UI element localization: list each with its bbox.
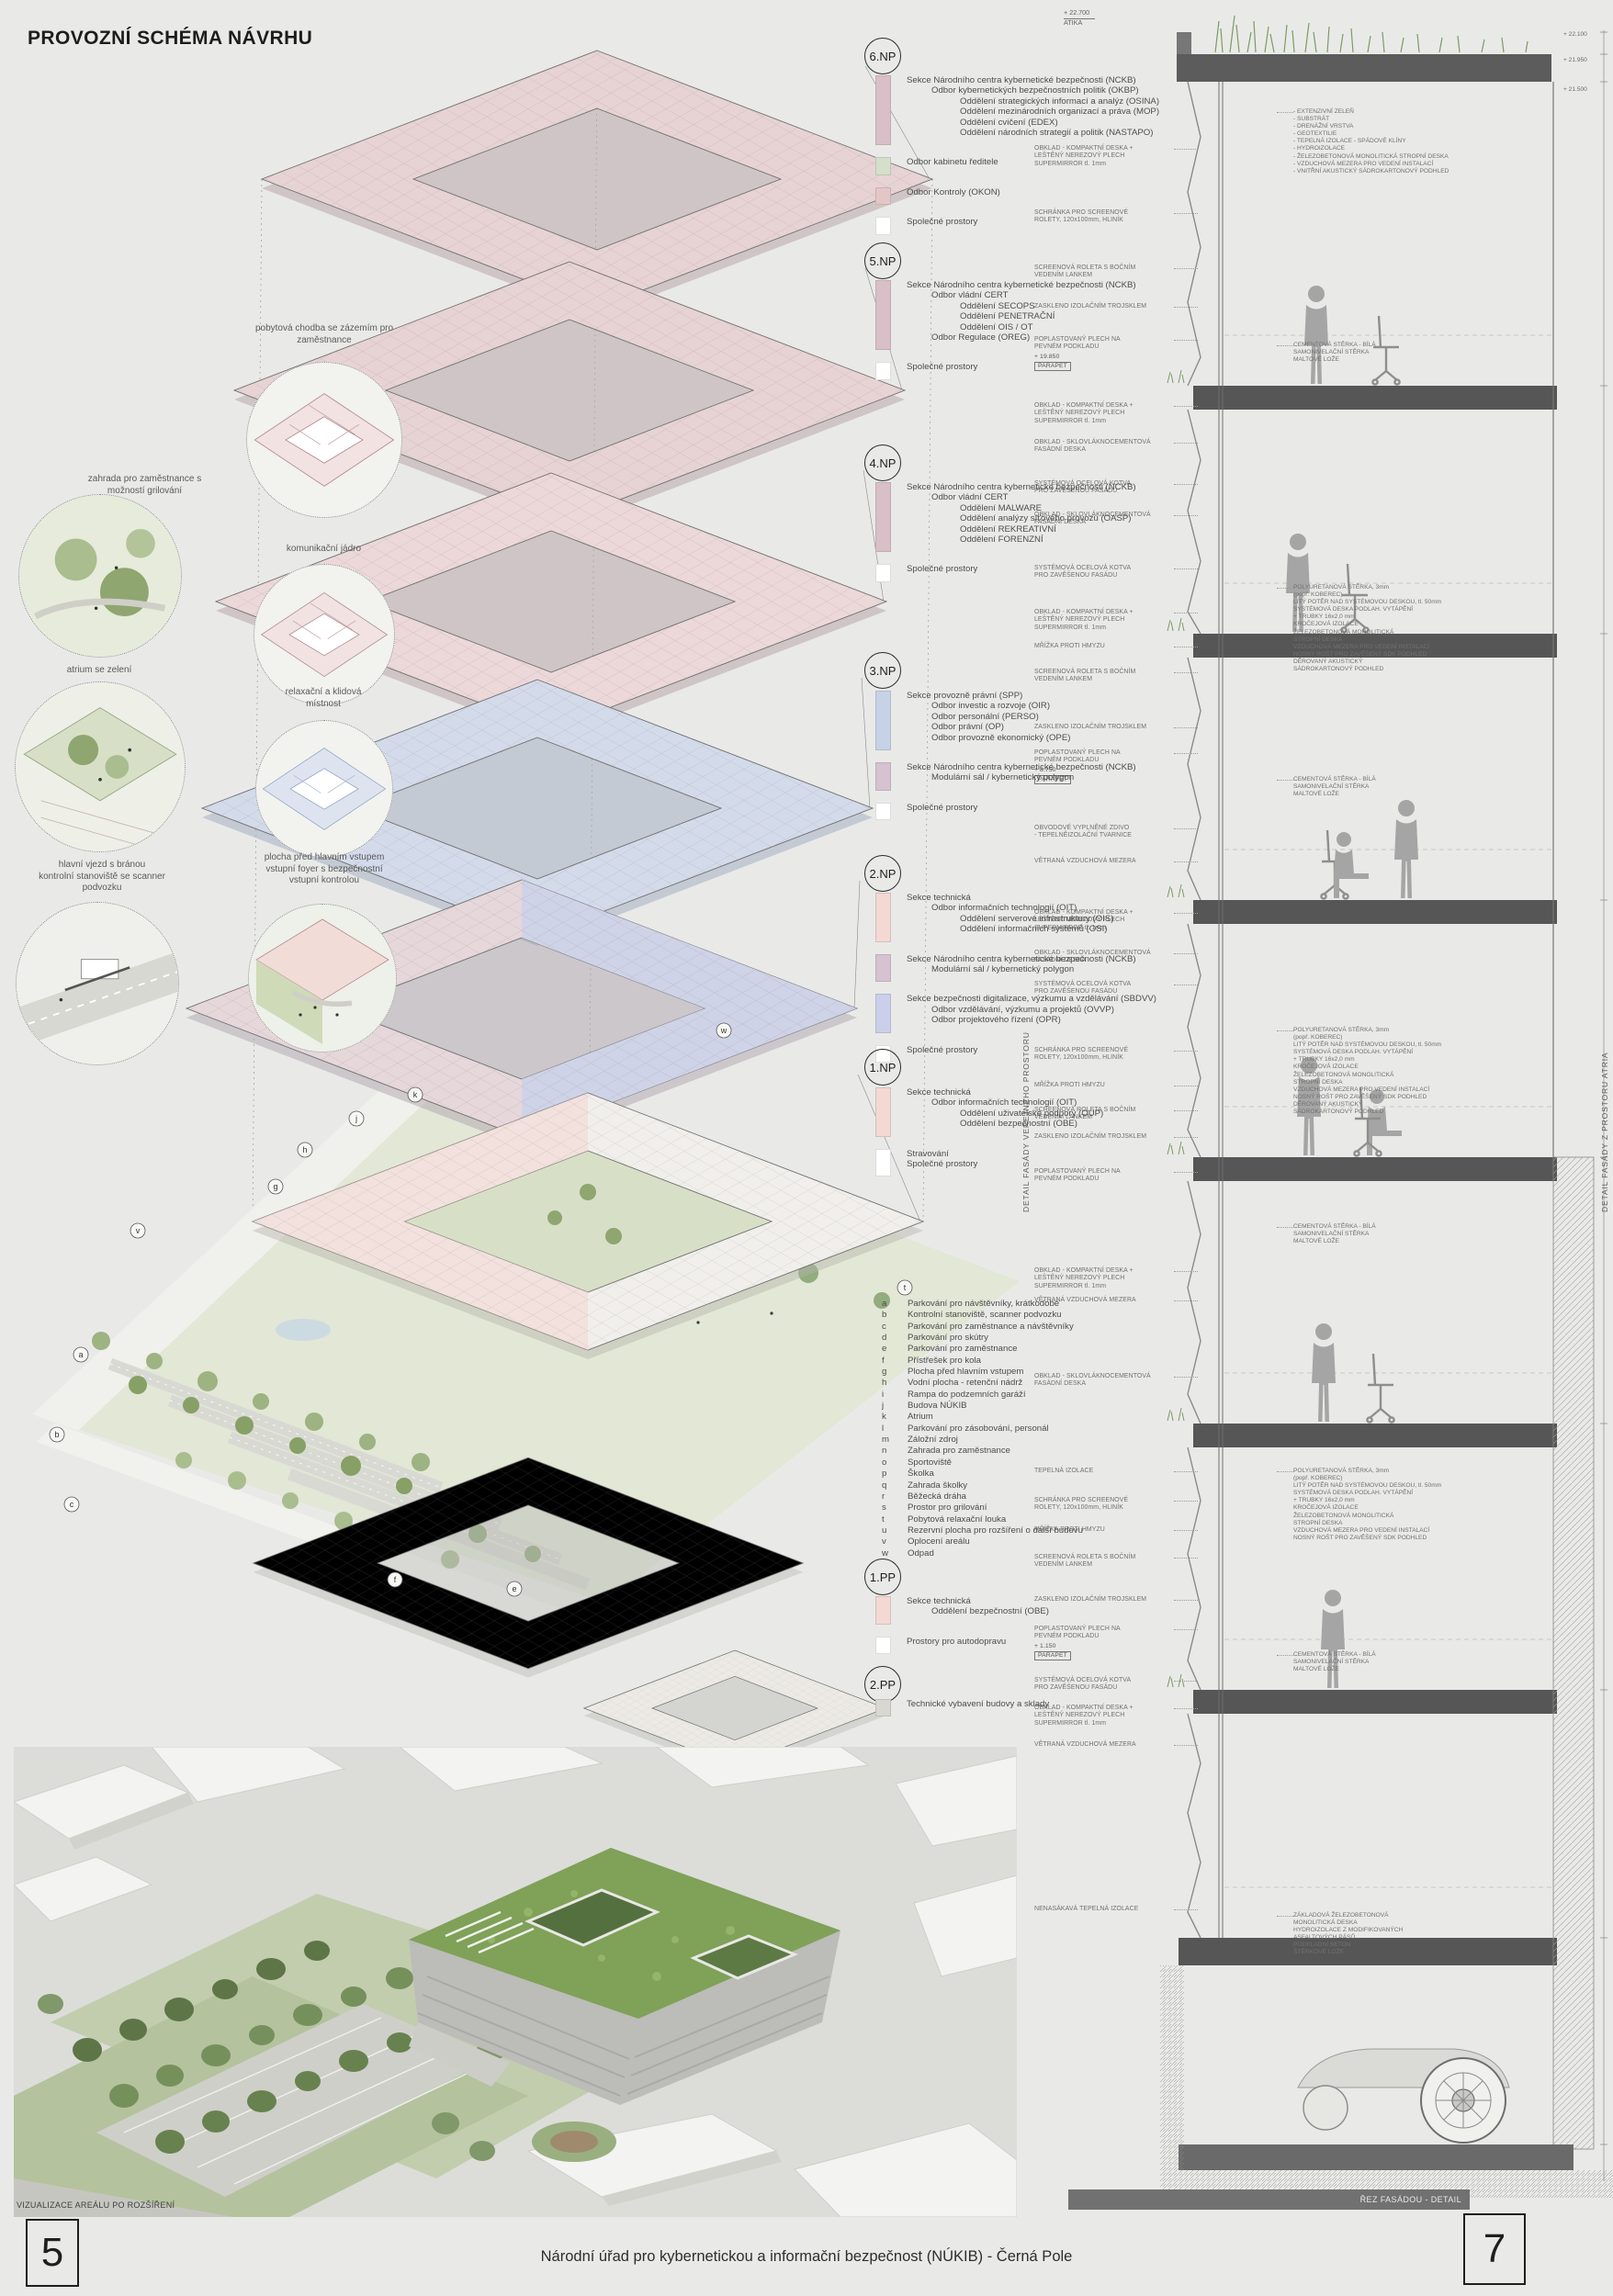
- facade-annotation: SCREENOVÁ ROLETA S BOČNÍMVEDENÍM LANKEM: [1034, 264, 1174, 280]
- floor-legend-5.NP: Sekce Národního centra kybernetické bezp…: [875, 280, 1188, 392]
- facade-annotation: OBKLAD - KOMPAKTNÍ DESKA +LEŠTĚNÝ NEREZO…: [1034, 402, 1174, 425]
- section-bar: ŘEZ FASÁDOU - DETAIL: [1068, 2189, 1470, 2210]
- floor-circle-3.NP: 3.NP: [864, 652, 901, 689]
- legend-color-chip: [875, 362, 891, 379]
- facade-annotation: SCREENOVÁ ROLETA S BOČNÍMVEDENÍM LANKEM: [1034, 669, 1174, 684]
- legend-text: Společné prostory: [907, 564, 977, 581]
- svg-text:k: k: [413, 1090, 418, 1099]
- roof-grass: [1215, 16, 1528, 52]
- car-drawing: [1298, 2049, 1509, 2143]
- site-list-item: tPobytová relaxační louka: [882, 1514, 1185, 1525]
- floor-legend-1.PP: Sekce technickáOddělení bezpečnostní (OB…: [875, 1596, 1188, 1666]
- facade-annotation: VĚTRANÁ VZDUCHOVÁ MEZERA: [1034, 1741, 1174, 1749]
- legend-text: Odbor kabinetu ředitele: [907, 157, 998, 174]
- svg-text:b: b: [54, 1430, 59, 1439]
- legend-text: Sekce provozně právní (SPP)Odbor investi…: [907, 691, 1070, 750]
- floor-circle-2.PP: 2.PP: [864, 1666, 901, 1703]
- legend-text: Sekce technickáOddělení bezpečnostní (OB…: [907, 1596, 1049, 1625]
- site-list-item: fPřístřešek pro kola: [882, 1356, 1185, 1367]
- floor-legend-3.NP: Sekce provozně právní (SPP)Odbor investi…: [875, 691, 1188, 832]
- legend-color-chip: [875, 75, 891, 145]
- legend-text: Společné prostory: [907, 803, 977, 820]
- visualization-label: VIZUALIZACE AREÁLU PO ROZŠÍŘENÍ: [17, 2200, 175, 2210]
- callout-circle: [248, 904, 397, 1052]
- legend-color-chip: [875, 1699, 891, 1716]
- legend-text: Společné prostory: [907, 217, 977, 234]
- floor-plate-2pp: [584, 1650, 886, 1754]
- legend-color-chip: [875, 564, 891, 581]
- facade-annotation-right: POLYURETANOVÁ STĚRKA, 3mm(popř. KOBEREC)…: [1293, 1468, 1454, 1542]
- margin-elevation: + 21.500: [1563, 86, 1587, 93]
- callout-label: zahrada pro zaměstnance smožností grilov…: [46, 474, 243, 497]
- site-list-item: lParkování pro zásobování, personál: [882, 1424, 1185, 1435]
- legend-color-chip: [875, 187, 891, 205]
- svg-text:w: w: [720, 1026, 728, 1035]
- site-list-item: jBudova NÚKIB: [882, 1401, 1185, 1412]
- facade-annotation-right: - EXTENZIVNÍ ZELEŇ- SUBSTRÁT- DRENÁŽNÍ V…: [1293, 108, 1454, 175]
- floor-circle-4.NP: 4.NP: [864, 445, 901, 481]
- site-key-list: aParkování pro návštěvníky, krátkodobébK…: [882, 1299, 1185, 1559]
- legend-color-chip: [875, 893, 891, 942]
- legend-text: Sekce bezpečnosti digitalizace, výzkumu …: [907, 994, 1156, 1032]
- site-list-item: mZáložní zdroj: [882, 1435, 1185, 1446]
- legend-color-chip: [875, 954, 891, 983]
- callout-label: plocha před hlavním vstupemvstupní foyer…: [234, 852, 414, 887]
- legend-text: Společné prostory: [907, 1045, 977, 1063]
- legend-color-chip: [875, 994, 891, 1032]
- site-list-item: qZahrada školky: [882, 1480, 1185, 1491]
- callout-circle: [18, 494, 182, 658]
- legend-text: StravováníSpolečné prostory: [907, 1149, 977, 1177]
- legend-color-chip: [875, 1596, 891, 1625]
- svg-text:j: j: [355, 1114, 357, 1123]
- facade-annotation-right: CEMENTOVÁ STĚRKA - BÍLÁSAMONIVELAČNÍ STĚ…: [1293, 1223, 1454, 1245]
- legend-color-chip: [875, 803, 891, 820]
- site-list-item: iRampa do podzemních garáží: [882, 1390, 1185, 1401]
- facade-annotation-right: POLYURETANOVÁ STĚRKA, 3mm(popř. KOBEREC)…: [1293, 584, 1454, 673]
- legend-color-chip: [875, 762, 891, 791]
- callout-label: relaxační a klidovámístnost: [241, 687, 406, 710]
- site-list-item: sProstor pro grilování: [882, 1503, 1185, 1514]
- site-list-item: bKontrolní stanoviště, scanner podvozku: [882, 1310, 1185, 1321]
- facade-annotation-right: ZÁKLADOVÁ ŽELEZOBETONOVÁMONOLITICKÁ DESK…: [1293, 1912, 1454, 1957]
- callout-label: pobytová chodba se zázemím prozaměstnanc…: [242, 323, 407, 346]
- facade-annotation: OBKLAD - SKLOVLÁKNOCEMENTOVÁFASÁDNÍ DESK…: [1034, 439, 1174, 455]
- person-silhouette: [1304, 286, 1328, 384]
- svg-text:a: a: [78, 1350, 83, 1359]
- legend-color-chip: [875, 280, 891, 350]
- callout-label: atrium se zelení: [26, 665, 173, 677]
- callout-circle: [16, 902, 179, 1065]
- legend-text: Technické vybavení budovy a sklady: [907, 1699, 1049, 1716]
- callout-circle: [15, 681, 186, 852]
- legend-text: Společné prostory: [907, 362, 977, 379]
- facade-annotation: MŘÍŽKA PROTI HMYZU: [1034, 643, 1174, 650]
- site-list-item: vOplocení areálu: [882, 1536, 1185, 1548]
- floor-legend-1.NP: Sekce technickáOdbor informačních techno…: [875, 1087, 1188, 1188]
- site-list-item: kAtrium: [882, 1412, 1185, 1423]
- facade-annotation: SYSTÉMOVÁ OCELOVÁ KOTVAPRO ZAVĚŠENOU FAS…: [1034, 1677, 1174, 1693]
- site-list-item: gPlocha před hlavním vstupem: [882, 1367, 1185, 1378]
- site-list-item: rBěžecká dráha: [882, 1491, 1185, 1503]
- svg-text:c: c: [70, 1500, 74, 1509]
- floor-legend-6.NP: Sekce Národního centra kybernetické bezp…: [875, 75, 1188, 247]
- callout-circle: [255, 720, 393, 858]
- margin-elevation: + 21.950: [1563, 57, 1587, 63]
- callout-circle: [246, 362, 402, 518]
- site-list-item: dParkování pro skútry: [882, 1333, 1185, 1344]
- legend-text: Odbor Kontroly (OKON): [907, 187, 1000, 205]
- site-list-item: aParkování pro návštěvníky, krátkodobé: [882, 1299, 1185, 1310]
- floor-legend-4.NP: Sekce Národního centra kybernetické bezp…: [875, 482, 1188, 594]
- callout-circle: [254, 564, 395, 705]
- callout-label: komunikační jádro: [234, 544, 413, 556]
- footer-title: Národní úřad pro kybernetickou a informa…: [0, 2248, 1613, 2266]
- site-list-item: pŠkolka: [882, 1469, 1185, 1480]
- site-list-item: eParkování pro zaměstnance: [882, 1344, 1185, 1355]
- legend-text: Sekce technickáOdbor informačních techno…: [907, 1087, 1103, 1137]
- site-list-item: cParkování pro zaměstnance a návštěvníky: [882, 1322, 1185, 1333]
- svg-text:g: g: [273, 1182, 277, 1191]
- floor-legend-2.PP: Technické vybavení budovy a sklady: [875, 1699, 1188, 1728]
- floor-circle-2.NP: 2.NP: [864, 855, 901, 892]
- facade-annotation-right: CEMENTOVÁ STĚRKA - BÍLÁSAMONIVELAČNÍ STĚ…: [1293, 776, 1454, 798]
- site-list-item: nZahrada pro zaměstnance: [882, 1446, 1185, 1457]
- legend-color-chip: [875, 691, 891, 750]
- floor-circle-1.PP: 1.PP: [864, 1559, 901, 1595]
- facade-cladding-zigzag: [1188, 82, 1201, 1938]
- facade-annotation-right: POLYURETANOVÁ STĚRKA, 3mm(popř. KOBEREC)…: [1293, 1027, 1454, 1116]
- site-list-item: wOdpad: [882, 1548, 1185, 1559]
- facade-annotation-right: CEMENTOVÁ STĚRKA - BÍLÁSAMONIVELAČNÍ STĚ…: [1293, 1651, 1454, 1673]
- legend-color-chip: [875, 217, 891, 234]
- aerial-visualization: [14, 1747, 1017, 2217]
- site-list-item: hVodní plocha - retenční nádrž: [882, 1378, 1185, 1389]
- floor-circle-6.NP: 6.NP: [864, 38, 901, 74]
- floor-circle-1.NP: 1.NP: [864, 1049, 901, 1086]
- svg-text:h: h: [302, 1145, 307, 1154]
- legend-text: Sekce Národního centra kybernetické bezp…: [907, 954, 1136, 983]
- floor-circle-5.NP: 5.NP: [864, 242, 901, 279]
- site-list-item: oSportoviště: [882, 1458, 1185, 1469]
- floor-legend-2.NP: Sekce technickáOdbor informačních techno…: [875, 893, 1188, 1075]
- legend-color-chip: [875, 157, 891, 174]
- legend-text: Sekce technickáOdbor informačních techno…: [907, 893, 1113, 942]
- facade-annotation: OBKLAD - KOMPAKTNÍ DESKA +LEŠTĚNÝ NEREZO…: [1034, 609, 1174, 632]
- legend-text: Sekce Národního centra kybernetické bezp…: [907, 482, 1136, 552]
- page-title: PROVOZNÍ SCHÉMA NÁVRHU: [28, 28, 312, 50]
- legend-text: Sekce Národního centra kybernetické bezp…: [907, 762, 1136, 791]
- callout-label: hlavní vjezd s bránoukontrolní stanovišt…: [20, 860, 184, 895]
- svg-text:e: e: [512, 1584, 516, 1593]
- legend-color-chip: [875, 1149, 891, 1177]
- legend-color-chip: [875, 1637, 891, 1654]
- facade-annotation: OBKLAD - KOMPAKTNÍ DESKA +LEŠTĚNÝ NEREZO…: [1034, 1267, 1174, 1290]
- margin-elevation: + 22.100: [1563, 31, 1587, 38]
- legend-text: Prostory pro autodopravu: [907, 1637, 1006, 1654]
- site-list-item: uRezervní plocha pro rozšíření o další b…: [882, 1525, 1185, 1536]
- facade-annotation-right: CEMENTOVÁ STĚRKA - BÍLÁSAMONIVELAČNÍ STĚ…: [1293, 342, 1454, 364]
- svg-text:v: v: [136, 1226, 141, 1235]
- vertical-label-right: DETAIL FASÁDY Z PROSTORU ATRIA: [1600, 698, 1609, 1212]
- elevation-atika: + 22.700 ATIKA: [1064, 9, 1095, 27]
- legend-text: Sekce Národního centra kybernetické bezp…: [907, 75, 1159, 145]
- legend-color-chip: [875, 482, 891, 552]
- facade-annotation: NENASÁKAVÁ TEPELNÁ IZOLACE: [1034, 1906, 1174, 1913]
- legend-text: Sekce Národního centra kybernetické bezp…: [907, 280, 1136, 350]
- legend-color-chip: [875, 1087, 891, 1137]
- facade-annotation: VĚTRANÁ VZDUCHOVÁ MEZERA: [1034, 858, 1174, 865]
- section-bar-label: ŘEZ FASÁDOU - DETAIL: [1360, 2195, 1461, 2204]
